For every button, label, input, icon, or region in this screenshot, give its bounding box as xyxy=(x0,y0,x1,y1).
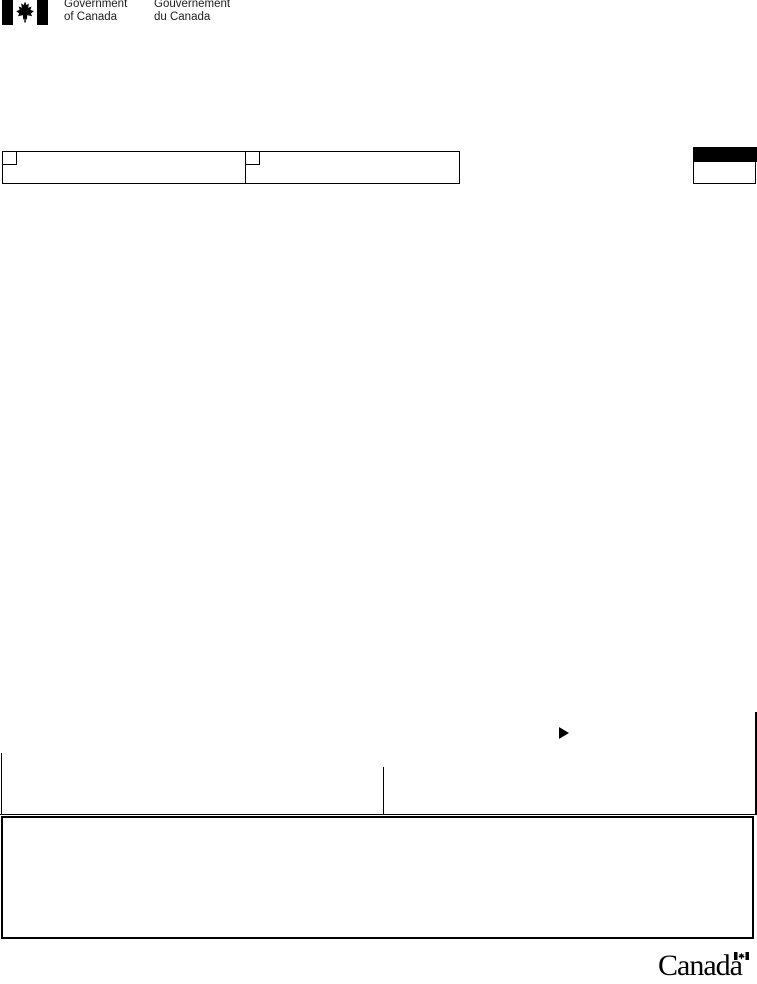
classification-box[interactable] xyxy=(693,161,756,184)
fip-french-line2: du Canada xyxy=(154,11,230,24)
checkbox-cell-left[interactable] xyxy=(3,152,246,183)
fip-english-line1: Government xyxy=(64,0,127,11)
checkbox-left[interactable] xyxy=(3,152,17,165)
bottom-row-divider xyxy=(383,767,384,815)
comments-box[interactable] xyxy=(1,816,754,939)
bottom-row-bottom-rule xyxy=(0,814,757,815)
classification-bar xyxy=(693,147,757,162)
right-pointer-icon xyxy=(559,727,569,739)
fip-french-text: Gouvernement du Canada xyxy=(154,0,230,24)
fip-english-text: Government of Canada xyxy=(64,0,127,24)
canada-wordmark: Canada xyxy=(658,950,756,983)
fip-english-line2: of Canada xyxy=(64,11,127,24)
fip-french-line1: Gouvernement xyxy=(154,0,230,11)
checkbox-right[interactable] xyxy=(246,152,260,165)
checkbox-row xyxy=(2,151,460,184)
form-page: Government of Canada Gouvernement du Can… xyxy=(0,0,757,984)
canada-wordmark-flag-icon xyxy=(734,952,749,960)
checkbox-cell-right[interactable] xyxy=(246,152,459,183)
canada-flag-icon xyxy=(2,0,48,25)
bottom-row-left-border xyxy=(1,753,2,815)
